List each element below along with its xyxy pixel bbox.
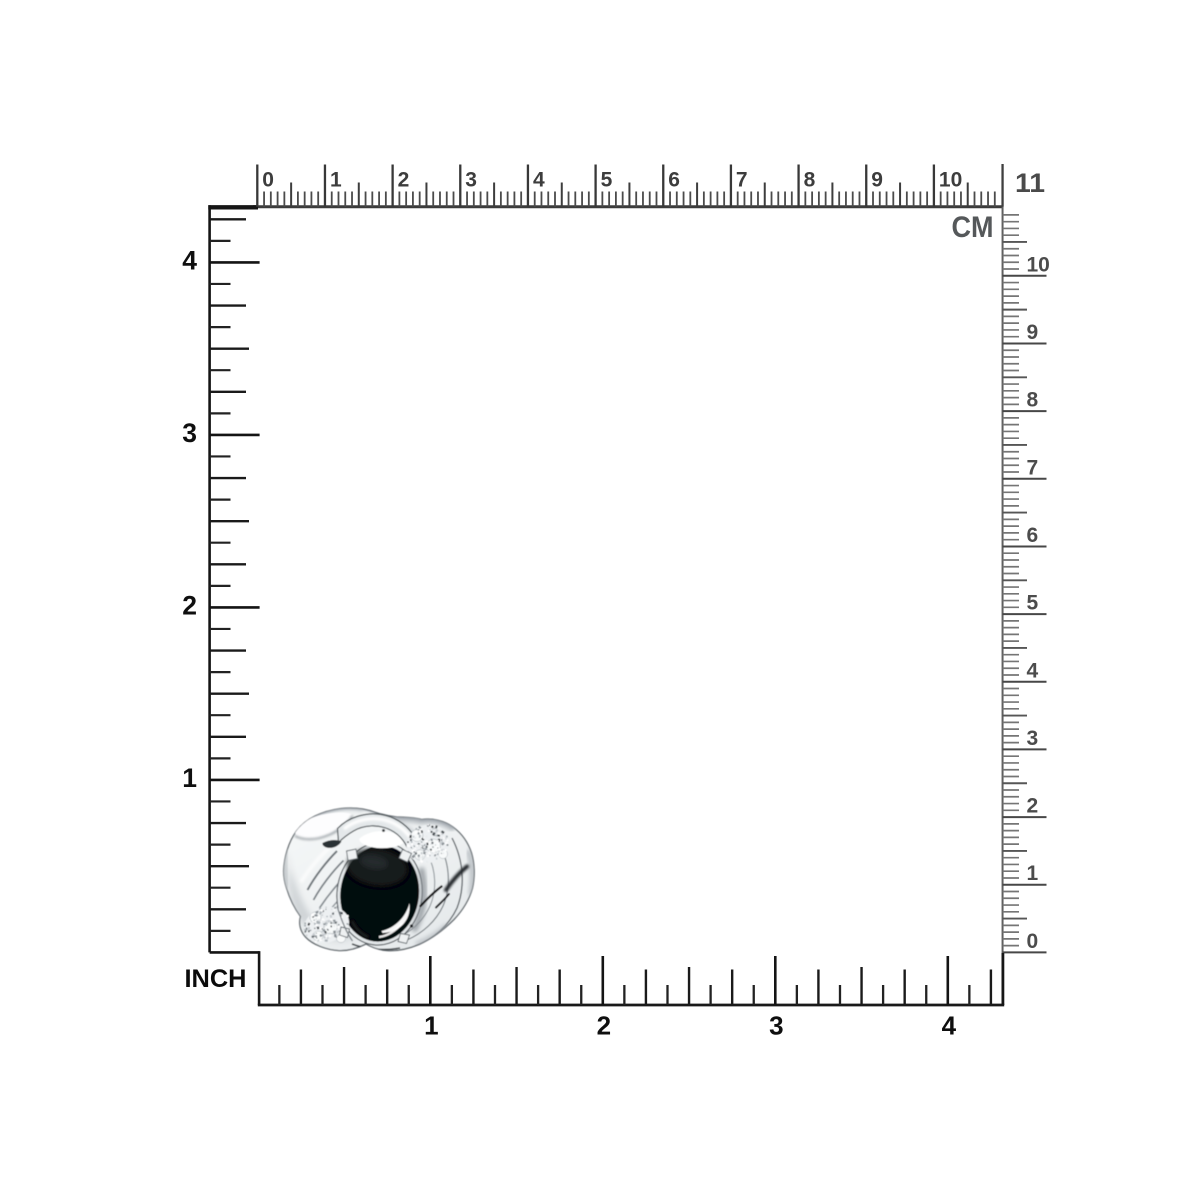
svg-text:2: 2 [1027, 795, 1039, 818]
svg-text:1: 1 [330, 168, 342, 191]
svg-text:11: 11 [1015, 168, 1045, 198]
svg-text:4: 4 [182, 246, 197, 276]
svg-text:CM: CM [952, 211, 994, 244]
svg-text:5: 5 [1027, 592, 1039, 615]
svg-text:3: 3 [1027, 727, 1039, 750]
svg-text:6: 6 [668, 168, 680, 191]
svg-text:4: 4 [533, 168, 545, 191]
svg-text:10: 10 [1027, 253, 1050, 276]
svg-text:0: 0 [1027, 930, 1039, 953]
svg-text:1: 1 [182, 763, 197, 793]
svg-text:0: 0 [262, 168, 274, 191]
svg-text:4: 4 [1027, 659, 1039, 682]
svg-text:2: 2 [182, 591, 197, 621]
svg-text:7: 7 [1027, 456, 1039, 479]
svg-text:9: 9 [1027, 321, 1039, 344]
svg-text:3: 3 [182, 418, 197, 448]
svg-text:INCH: INCH [185, 965, 247, 993]
svg-text:2: 2 [398, 168, 410, 191]
svg-text:5: 5 [601, 168, 613, 191]
svg-text:10: 10 [939, 168, 962, 191]
svg-text:8: 8 [1027, 389, 1039, 412]
svg-text:4: 4 [942, 1011, 957, 1041]
svg-text:3: 3 [769, 1011, 783, 1041]
svg-text:7: 7 [736, 168, 748, 191]
svg-text:1: 1 [1027, 862, 1039, 885]
svg-text:9: 9 [871, 168, 883, 191]
svg-text:6: 6 [1027, 524, 1039, 547]
svg-text:2: 2 [597, 1011, 611, 1041]
svg-text:1: 1 [424, 1011, 438, 1041]
svg-text:3: 3 [465, 168, 477, 191]
svg-text:8: 8 [804, 168, 816, 191]
